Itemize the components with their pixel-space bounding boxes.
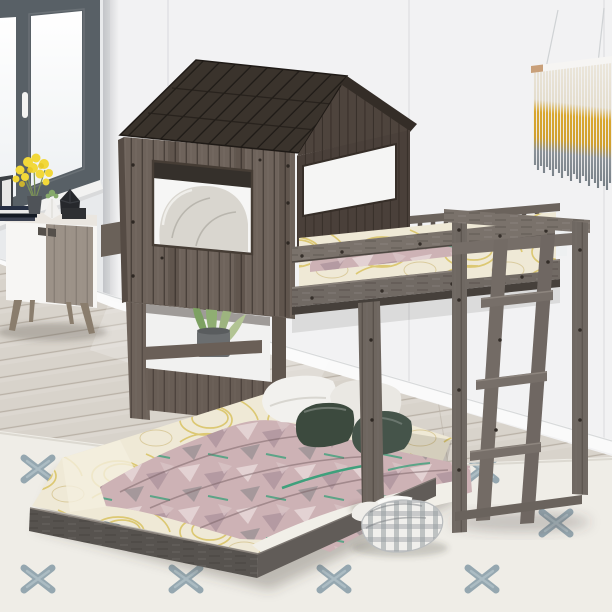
window xyxy=(0,0,103,231)
product-photo-bunk-bed-room xyxy=(0,0,612,612)
window-pane-left xyxy=(0,17,16,202)
cabinet-handle xyxy=(38,227,46,236)
cabinet-handle xyxy=(48,228,56,237)
footboard-cutout xyxy=(556,245,567,256)
room-corner-shadow xyxy=(103,0,119,310)
house-front-window xyxy=(153,161,252,254)
window-handle xyxy=(22,92,28,118)
dark-box xyxy=(62,208,86,219)
hanging-rod-tip xyxy=(531,65,543,74)
vase xyxy=(27,196,42,214)
